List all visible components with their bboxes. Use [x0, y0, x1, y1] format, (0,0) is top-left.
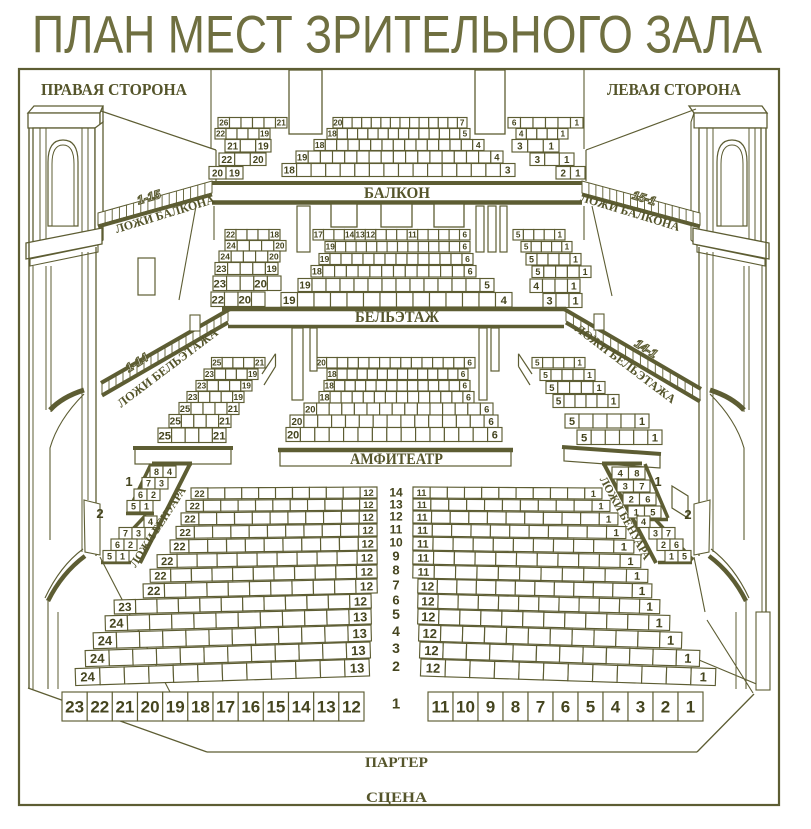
svg-text:17: 17	[216, 698, 235, 717]
svg-text:19: 19	[266, 263, 276, 274]
svg-text:2: 2	[661, 698, 670, 717]
svg-text:12: 12	[363, 500, 373, 510]
svg-text:1: 1	[564, 155, 570, 166]
svg-text:6: 6	[138, 490, 143, 500]
svg-text:1: 1	[565, 243, 570, 252]
svg-text:6: 6	[484, 403, 489, 414]
svg-text:12: 12	[421, 579, 435, 593]
svg-text:26: 26	[219, 119, 229, 128]
svg-text:22: 22	[147, 584, 161, 598]
svg-text:24: 24	[109, 615, 124, 630]
svg-text:1: 1	[639, 416, 645, 428]
svg-text:8: 8	[392, 563, 399, 578]
svg-text:22: 22	[194, 489, 204, 499]
svg-text:20: 20	[253, 155, 264, 166]
svg-text:21: 21	[115, 698, 134, 717]
svg-text:ЛЕВАЯ СТОРОНА: ЛЕВАЯ СТОРОНА	[607, 80, 742, 99]
svg-text:4: 4	[533, 281, 539, 293]
svg-text:24: 24	[90, 651, 106, 666]
svg-text:11: 11	[417, 488, 427, 498]
svg-text:19: 19	[320, 254, 330, 264]
svg-text:5: 5	[650, 506, 655, 517]
svg-text:10: 10	[456, 698, 475, 717]
svg-text:5: 5	[524, 243, 529, 252]
svg-text:3: 3	[653, 529, 658, 539]
svg-text:12: 12	[354, 594, 368, 608]
svg-text:8: 8	[154, 467, 159, 477]
svg-text:11: 11	[417, 526, 428, 537]
svg-text:1: 1	[598, 501, 603, 511]
svg-text:5: 5	[535, 267, 540, 277]
svg-text:18: 18	[270, 231, 280, 240]
svg-text:22: 22	[226, 231, 236, 240]
svg-text:12: 12	[366, 231, 376, 240]
svg-text:23: 23	[214, 278, 227, 290]
svg-text:12: 12	[342, 698, 361, 717]
svg-text:3: 3	[505, 166, 511, 177]
svg-text:1: 1	[627, 556, 633, 568]
svg-text:13: 13	[317, 698, 336, 717]
svg-text:6: 6	[512, 119, 517, 128]
svg-text:5: 5	[682, 552, 687, 562]
svg-text:3: 3	[517, 141, 523, 152]
svg-text:20: 20	[305, 403, 315, 414]
svg-text:22: 22	[212, 294, 225, 306]
svg-text:5: 5	[463, 130, 468, 139]
svg-text:4: 4	[641, 517, 646, 527]
svg-text:18: 18	[191, 698, 210, 717]
svg-text:6: 6	[467, 359, 472, 368]
svg-text:1: 1	[646, 600, 653, 614]
svg-text:23: 23	[216, 263, 226, 274]
svg-text:5: 5	[535, 359, 540, 368]
svg-text:7: 7	[666, 529, 671, 539]
svg-text:1: 1	[587, 370, 592, 380]
svg-text:1: 1	[655, 615, 663, 630]
svg-text:18: 18	[312, 267, 322, 277]
svg-text:5: 5	[586, 698, 595, 717]
svg-text:1: 1	[652, 432, 658, 444]
svg-text:12: 12	[361, 567, 373, 579]
svg-text:24: 24	[227, 242, 237, 251]
svg-text:1: 1	[572, 295, 578, 307]
svg-text:14: 14	[292, 698, 311, 717]
svg-text:13: 13	[356, 231, 366, 240]
svg-text:20: 20	[291, 417, 302, 428]
svg-text:3: 3	[159, 479, 164, 489]
svg-text:5: 5	[543, 370, 548, 380]
svg-text:6: 6	[463, 382, 468, 391]
svg-text:6: 6	[463, 231, 468, 240]
svg-text:11: 11	[432, 698, 450, 717]
svg-text:1: 1	[686, 698, 695, 717]
svg-text:23: 23	[65, 698, 84, 717]
svg-text:24: 24	[220, 252, 230, 262]
svg-text:1: 1	[583, 267, 588, 277]
svg-text:19: 19	[229, 168, 240, 179]
svg-text:25: 25	[170, 417, 182, 428]
svg-text:15: 15	[266, 698, 285, 717]
svg-text:17: 17	[314, 231, 324, 240]
svg-text:ПЛАН МЕСТ ЗРИТЕЛЬНОГО ЗАЛА: ПЛАН МЕСТ ЗРИТЕЛЬНОГО ЗАЛА	[32, 6, 763, 65]
svg-text:18: 18	[327, 370, 337, 379]
svg-text:4: 4	[611, 698, 621, 717]
svg-text:20: 20	[275, 242, 285, 251]
svg-text:7: 7	[536, 698, 545, 717]
svg-text:1: 1	[392, 695, 400, 712]
svg-text:6: 6	[461, 370, 466, 379]
svg-text:6: 6	[492, 429, 498, 441]
svg-text:24: 24	[80, 669, 96, 684]
svg-text:1: 1	[120, 552, 125, 562]
svg-text:12: 12	[362, 526, 374, 537]
svg-text:7: 7	[146, 479, 151, 489]
svg-text:11: 11	[408, 231, 417, 240]
svg-text:11: 11	[417, 513, 428, 524]
svg-text:1: 1	[548, 141, 554, 152]
svg-text:4: 4	[501, 295, 508, 307]
svg-text:21: 21	[228, 403, 238, 414]
svg-text:1: 1	[606, 515, 612, 526]
svg-text:19: 19	[242, 382, 252, 391]
svg-text:12: 12	[361, 539, 373, 551]
svg-text:12: 12	[426, 660, 441, 675]
svg-text:20: 20	[317, 359, 327, 368]
svg-text:ПРАВАЯ СТОРОНА: ПРАВАЯ СТОРОНА	[41, 80, 188, 99]
svg-text:23: 23	[188, 392, 198, 402]
svg-text:5: 5	[581, 432, 587, 444]
svg-text:25: 25	[212, 359, 222, 368]
svg-text:3: 3	[546, 295, 552, 307]
svg-text:20: 20	[254, 278, 267, 290]
svg-text:БЕЛЬЭТАЖ: БЕЛЬЭТАЖ	[355, 309, 439, 326]
svg-text:24: 24	[97, 633, 113, 648]
svg-text:20: 20	[212, 168, 223, 179]
svg-text:2: 2	[128, 540, 133, 550]
svg-text:6: 6	[463, 243, 468, 252]
svg-text:18: 18	[325, 382, 335, 391]
svg-text:13: 13	[353, 609, 368, 624]
svg-text:4: 4	[167, 467, 172, 477]
svg-text:12: 12	[421, 609, 436, 624]
svg-text:5: 5	[107, 552, 112, 562]
svg-text:20: 20	[269, 252, 279, 262]
svg-text:5: 5	[131, 502, 136, 512]
svg-text:1: 1	[125, 474, 132, 489]
svg-text:1: 1	[669, 552, 674, 562]
svg-text:12: 12	[363, 488, 373, 498]
svg-text:22: 22	[184, 514, 196, 525]
svg-text:2: 2	[560, 168, 566, 179]
svg-text:22: 22	[173, 541, 185, 553]
svg-text:22: 22	[154, 570, 166, 582]
svg-text:3: 3	[136, 529, 141, 539]
svg-text:5: 5	[392, 606, 400, 622]
svg-text:5: 5	[569, 416, 575, 428]
svg-text:1: 1	[144, 502, 149, 512]
svg-text:2: 2	[151, 490, 156, 500]
svg-text:6: 6	[488, 417, 494, 428]
svg-text:1: 1	[571, 281, 577, 293]
svg-text:ПАРТЕР: ПАРТЕР	[365, 755, 428, 771]
svg-text:18: 18	[284, 166, 296, 177]
svg-text:20: 20	[141, 698, 160, 717]
svg-text:2: 2	[629, 493, 634, 504]
svg-text:23: 23	[205, 370, 215, 379]
svg-text:23: 23	[118, 600, 132, 614]
svg-text:19: 19	[248, 370, 258, 379]
svg-text:13: 13	[350, 660, 365, 675]
svg-text:18: 18	[319, 393, 329, 403]
svg-text:22: 22	[90, 698, 109, 717]
svg-text:1: 1	[611, 397, 617, 408]
svg-text:9: 9	[392, 549, 399, 564]
svg-text:19: 19	[234, 392, 244, 402]
svg-text:7: 7	[460, 119, 465, 128]
svg-text:1: 1	[596, 382, 601, 393]
svg-text:1: 1	[575, 119, 580, 128]
svg-text:2: 2	[96, 506, 103, 521]
svg-text:19: 19	[297, 151, 307, 162]
svg-text:4: 4	[519, 130, 524, 139]
svg-text:1: 1	[667, 633, 675, 648]
svg-text:19: 19	[260, 130, 270, 139]
svg-text:12: 12	[361, 553, 373, 565]
svg-text:4: 4	[392, 623, 400, 639]
svg-text:10: 10	[389, 535, 403, 549]
svg-text:1: 1	[639, 584, 646, 598]
svg-text:23: 23	[197, 382, 207, 391]
svg-text:1: 1	[621, 541, 627, 553]
svg-text:21: 21	[213, 430, 226, 442]
svg-text:12: 12	[424, 643, 439, 658]
svg-text:5: 5	[529, 255, 534, 265]
svg-text:11: 11	[417, 500, 427, 510]
svg-text:22: 22	[179, 528, 191, 539]
svg-text:19: 19	[258, 141, 269, 152]
svg-text:19: 19	[326, 243, 336, 252]
svg-text:6: 6	[465, 254, 470, 264]
svg-text:6: 6	[115, 540, 120, 550]
svg-text:13: 13	[351, 643, 366, 658]
svg-text:12: 12	[389, 509, 403, 523]
svg-text:4: 4	[618, 467, 624, 478]
svg-text:21: 21	[227, 141, 238, 152]
svg-text:2: 2	[392, 658, 400, 674]
svg-text:1: 1	[591, 489, 596, 499]
svg-text:11: 11	[417, 553, 429, 565]
svg-text:БАЛКОН: БАЛКОН	[364, 185, 431, 202]
svg-text:5: 5	[484, 281, 490, 292]
svg-text:3: 3	[623, 480, 628, 491]
svg-text:4: 4	[476, 140, 481, 150]
svg-text:8: 8	[634, 467, 639, 478]
svg-text:11: 11	[417, 539, 429, 551]
svg-text:12: 12	[360, 579, 374, 593]
svg-text:5: 5	[516, 231, 521, 240]
svg-text:3: 3	[535, 155, 541, 166]
svg-text:8: 8	[511, 698, 520, 717]
svg-text:22: 22	[221, 155, 232, 166]
svg-text:6: 6	[466, 393, 471, 403]
svg-text:3: 3	[636, 698, 645, 717]
svg-text:АМФИТЕАТР: АМФИТЕАТР	[350, 451, 443, 468]
svg-text:19: 19	[283, 295, 296, 307]
svg-text:СЦЕНА: СЦЕНА	[366, 790, 427, 806]
svg-text:25: 25	[180, 403, 190, 414]
svg-text:1: 1	[558, 231, 563, 240]
svg-text:5: 5	[549, 382, 554, 393]
svg-text:1: 1	[684, 651, 692, 666]
svg-text:25: 25	[159, 430, 172, 442]
svg-text:6: 6	[645, 493, 650, 504]
svg-text:21: 21	[277, 119, 287, 128]
svg-text:21: 21	[255, 359, 265, 368]
svg-text:1: 1	[613, 528, 619, 539]
svg-text:20: 20	[333, 119, 343, 128]
svg-text:11: 11	[418, 567, 430, 579]
svg-text:1: 1	[634, 571, 640, 583]
svg-text:2: 2	[684, 507, 691, 522]
svg-text:18: 18	[315, 140, 325, 150]
svg-text:14: 14	[345, 231, 355, 240]
svg-text:12: 12	[362, 513, 374, 524]
svg-text:19: 19	[166, 698, 185, 717]
svg-text:6: 6	[468, 267, 473, 277]
svg-text:19: 19	[299, 281, 311, 292]
svg-text:20: 20	[239, 294, 252, 306]
svg-text:1: 1	[654, 474, 661, 489]
svg-text:1: 1	[575, 168, 581, 179]
svg-text:21: 21	[219, 417, 231, 428]
svg-text:6: 6	[561, 698, 570, 717]
svg-text:6: 6	[674, 540, 679, 550]
svg-text:9: 9	[486, 698, 495, 717]
svg-text:1: 1	[577, 359, 582, 368]
svg-text:22: 22	[216, 130, 226, 139]
svg-text:12: 12	[421, 594, 435, 608]
svg-text:7: 7	[392, 578, 399, 593]
svg-text:4: 4	[494, 151, 500, 162]
svg-text:22: 22	[190, 501, 200, 511]
svg-text:12: 12	[422, 626, 437, 641]
svg-text:22: 22	[161, 556, 173, 568]
svg-text:7: 7	[639, 480, 644, 491]
svg-text:2: 2	[661, 540, 666, 550]
svg-text:7: 7	[123, 529, 128, 539]
svg-text:16: 16	[241, 698, 260, 717]
svg-text:13: 13	[352, 626, 367, 641]
svg-text:18: 18	[328, 130, 338, 139]
svg-text:1: 1	[561, 130, 566, 139]
svg-text:1: 1	[573, 255, 578, 265]
svg-text:5: 5	[556, 397, 562, 408]
svg-text:1: 1	[699, 669, 707, 684]
svg-text:11: 11	[390, 522, 403, 536]
svg-text:20: 20	[287, 429, 299, 441]
svg-text:3: 3	[392, 640, 400, 656]
